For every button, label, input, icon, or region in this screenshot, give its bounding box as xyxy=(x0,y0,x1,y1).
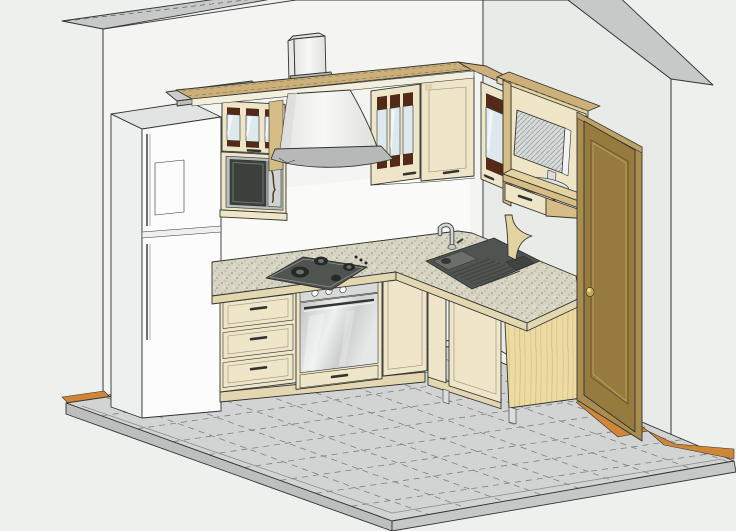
cooktop-knob xyxy=(355,256,358,259)
refrigerator-front xyxy=(142,117,221,418)
oven-drawer-handle xyxy=(332,375,347,377)
cabinet-leg xyxy=(443,389,449,404)
corner-wall-cabinet xyxy=(421,76,474,181)
refrigerator xyxy=(111,102,221,418)
three-drawer-base-cabinet xyxy=(220,291,296,392)
wooden-interior-door xyxy=(577,112,642,441)
microwave-window xyxy=(230,159,266,206)
cooktop-knob xyxy=(365,262,368,265)
cooktop-knob xyxy=(360,259,363,262)
cabinet-handle xyxy=(248,150,260,151)
kitchen-3d-scene xyxy=(0,0,736,531)
wall-cabinet-glass-door xyxy=(371,84,420,185)
door-leaf xyxy=(584,121,635,432)
drawer-handle xyxy=(251,307,266,309)
kitchen-render-canvas xyxy=(0,0,736,531)
burner xyxy=(331,275,341,282)
drawer-handle xyxy=(251,337,266,339)
sink-drain xyxy=(441,258,451,264)
cabinet-leg xyxy=(509,407,516,424)
drawer-handle xyxy=(251,367,266,369)
stainless-oven xyxy=(296,275,382,390)
refrigerator-side xyxy=(111,114,142,418)
cabinet-handle xyxy=(404,173,415,175)
